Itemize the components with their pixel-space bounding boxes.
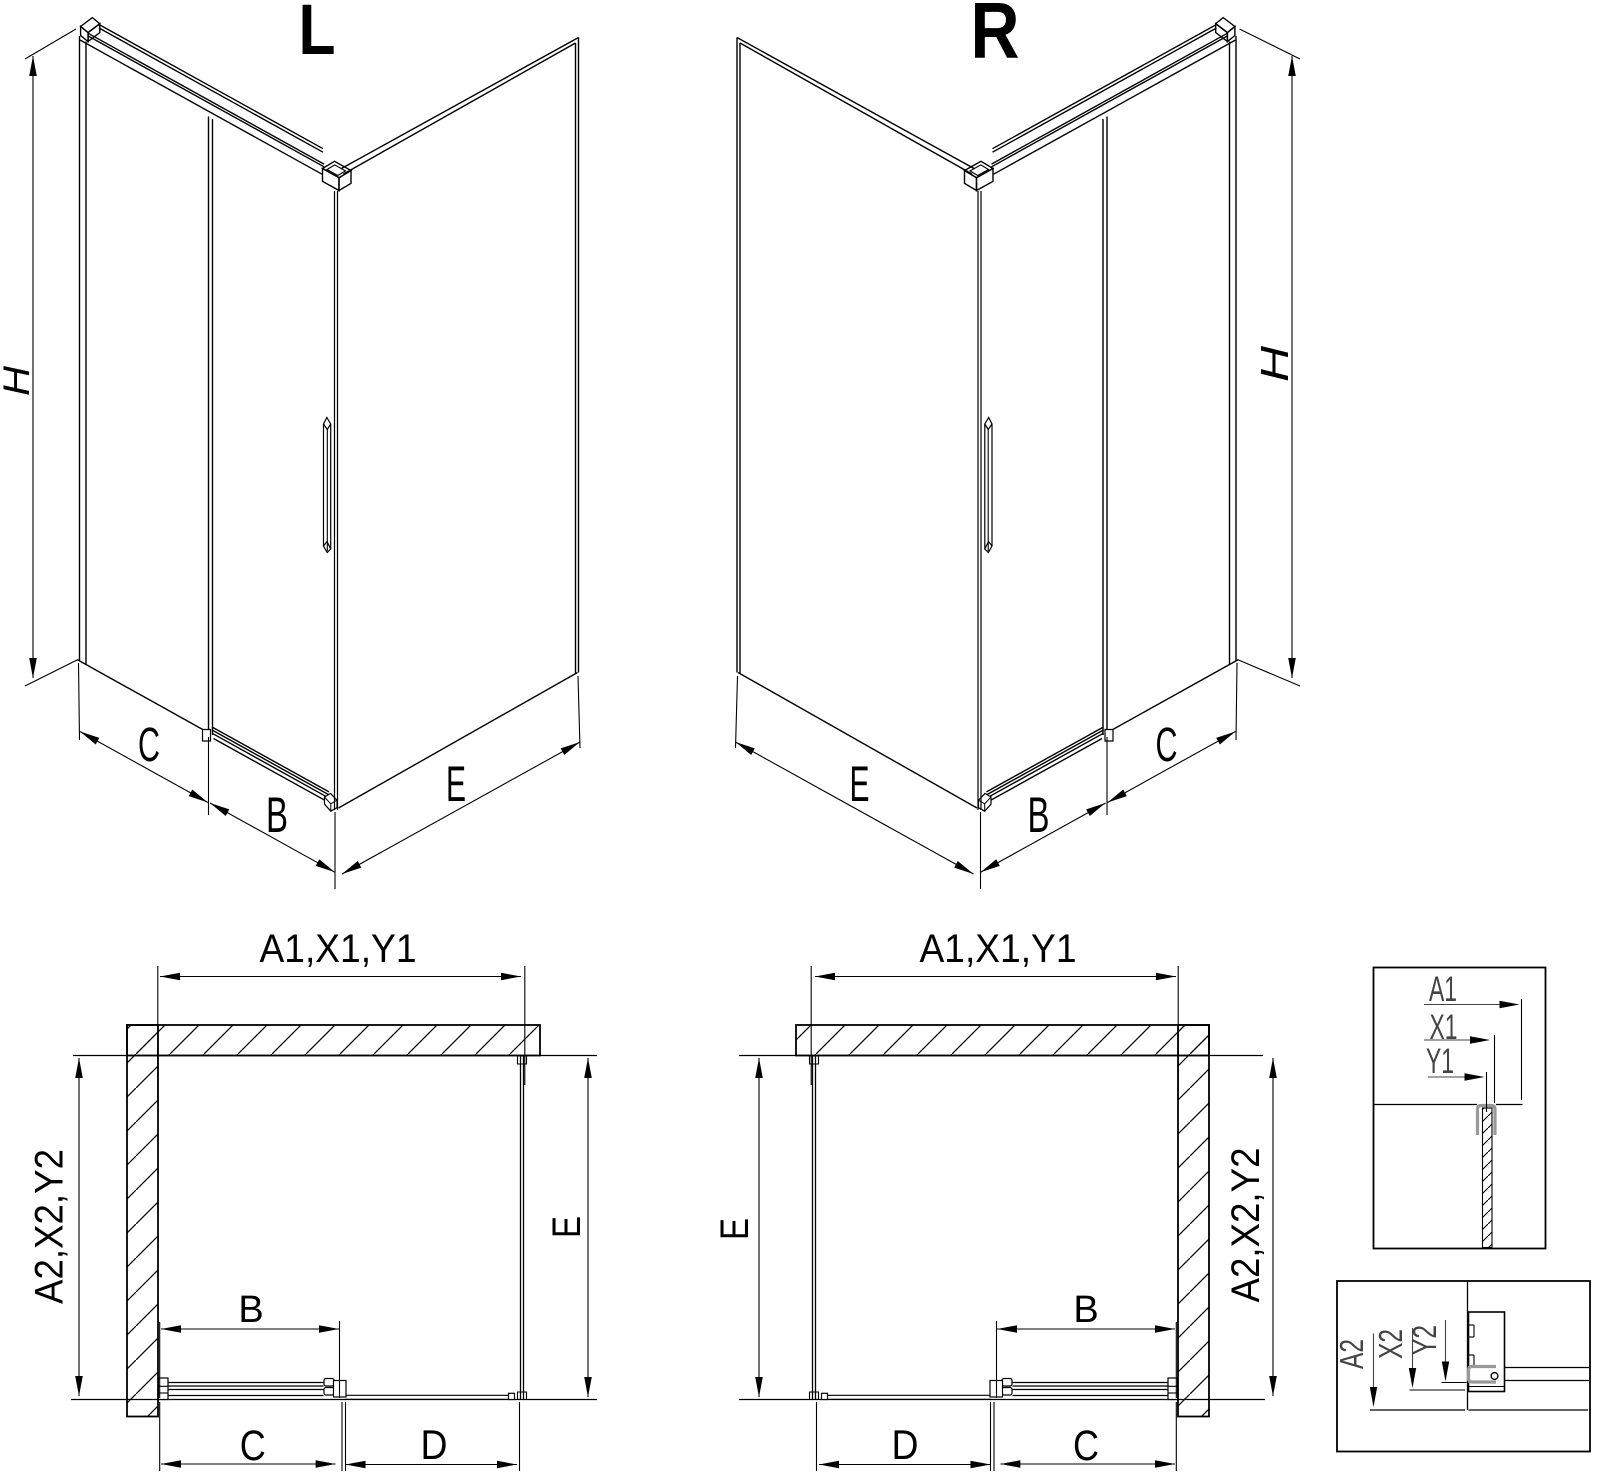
- svg-text:A1,X1,Y1: A1,X1,Y1: [920, 927, 1077, 971]
- svg-text:E: E: [446, 756, 466, 812]
- svg-text:B: B: [266, 787, 288, 843]
- svg-text:B: B: [238, 1289, 263, 1331]
- svg-text:D: D: [892, 1421, 919, 1468]
- svg-text:Y2: Y2: [1406, 1325, 1443, 1355]
- svg-text:A1,X1,Y1: A1,X1,Y1: [260, 927, 417, 971]
- svg-text:A1: A1: [1429, 970, 1457, 1009]
- svg-text:H: H: [0, 366, 37, 396]
- svg-text:A2,X2,Y2: A2,X2,Y2: [1224, 1148, 1268, 1303]
- svg-text:E: E: [713, 1218, 757, 1240]
- svg-text:B: B: [1028, 787, 1050, 843]
- svg-text:X2: X2: [1372, 1329, 1409, 1359]
- svg-text:A2: A2: [1333, 1339, 1370, 1369]
- svg-text:D: D: [421, 1421, 448, 1468]
- svg-text:C: C: [1156, 719, 1178, 772]
- svg-text:E: E: [850, 756, 870, 812]
- svg-text:C: C: [138, 719, 160, 772]
- svg-text:A2,X2,Y2: A2,X2,Y2: [28, 1149, 72, 1304]
- svg-text:C: C: [1073, 1422, 1099, 1470]
- svg-text:R: R: [971, 0, 1020, 75]
- svg-text:Y1: Y1: [1426, 1042, 1454, 1081]
- svg-text:B: B: [1073, 1289, 1098, 1331]
- svg-text:H: H: [1254, 345, 1297, 382]
- svg-text:L: L: [299, 0, 336, 70]
- svg-text:E: E: [545, 1216, 589, 1238]
- svg-text:C: C: [240, 1422, 266, 1470]
